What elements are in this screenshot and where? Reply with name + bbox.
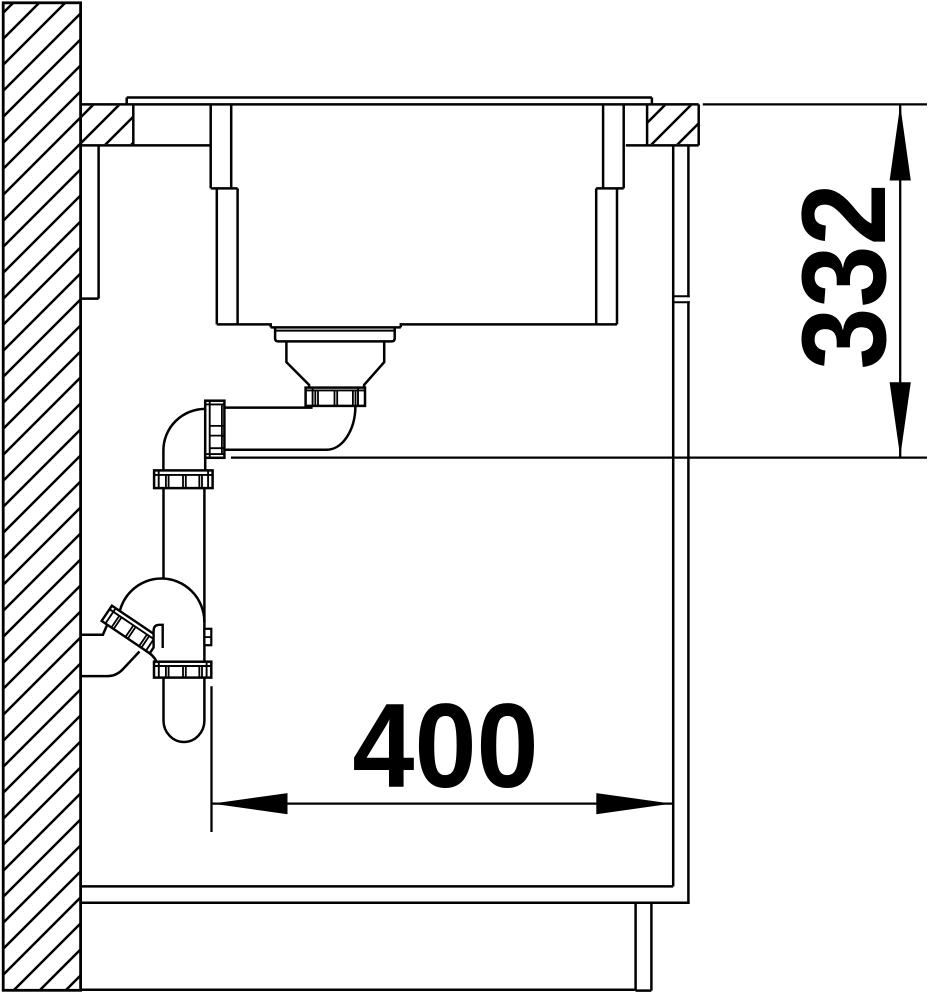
svg-text:332: 332 <box>776 183 911 369</box>
svg-text:400: 400 <box>352 678 538 813</box>
